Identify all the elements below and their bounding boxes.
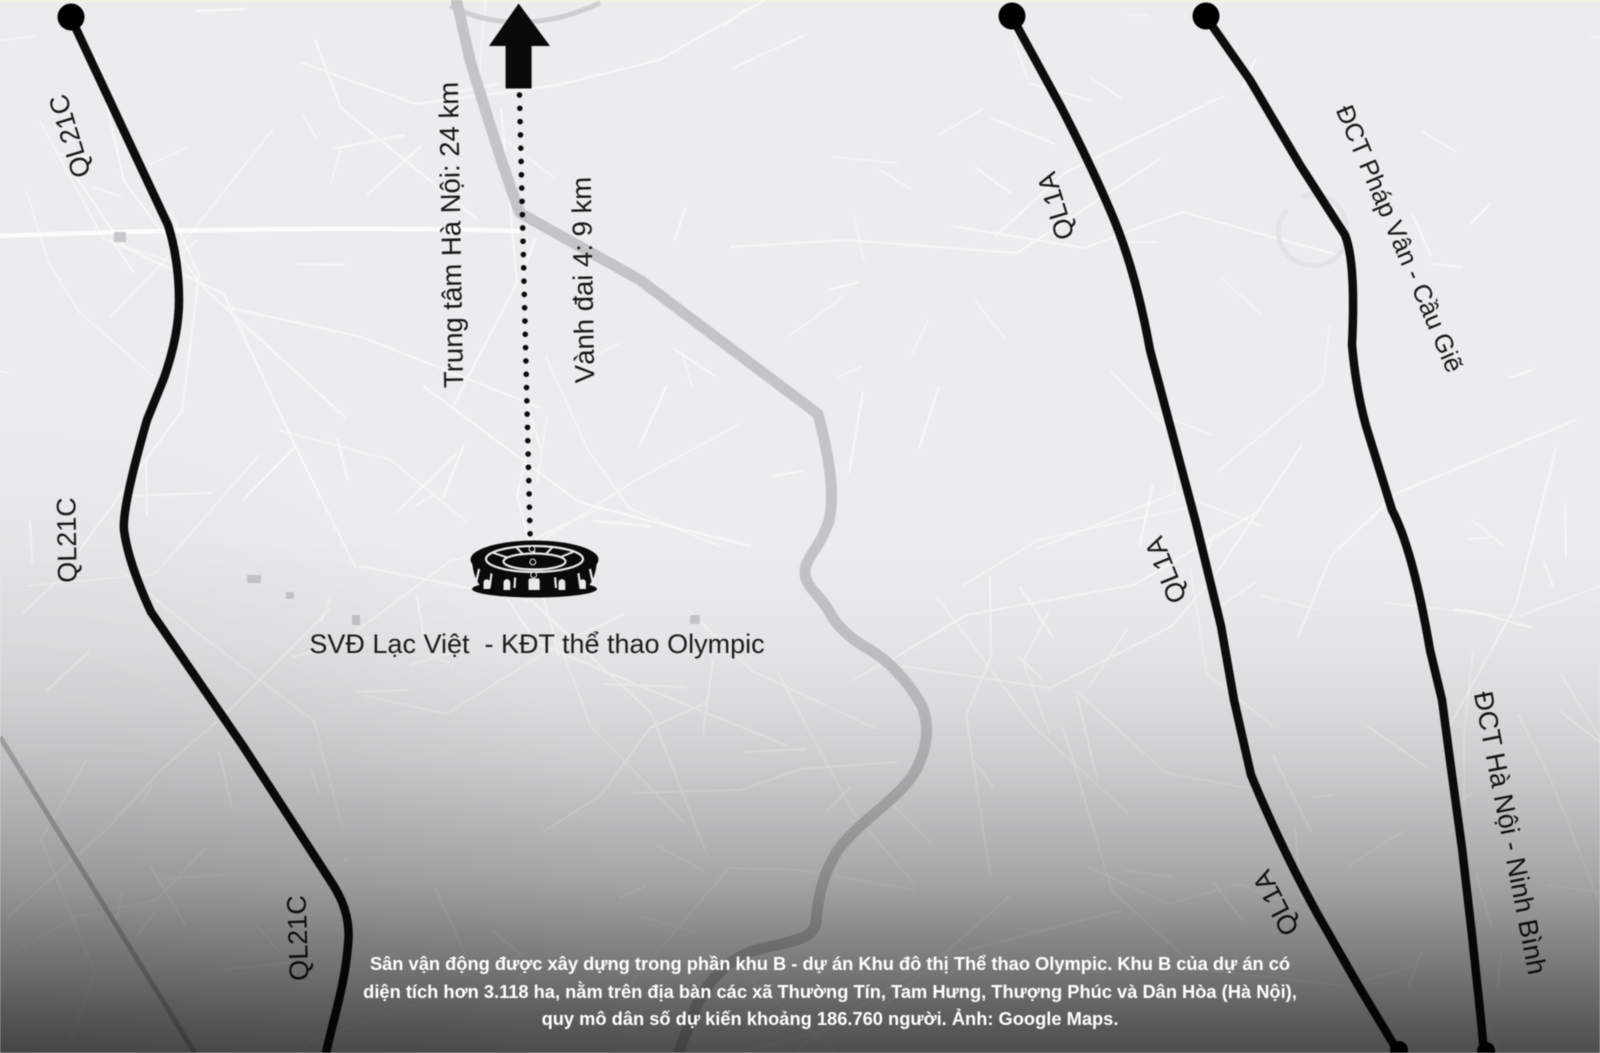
svg-text:Vành đai 4: 9 km: Vành đai 4: 9 km: [566, 177, 601, 384]
svg-text:diện tích hơn 3.118 ha, nằm tr: diện tích hơn 3.118 ha, nằm trên địa bàn…: [363, 981, 1297, 1002]
svg-text:Sân vận động được xây dựng tro: Sân vận động được xây dựng trong phần kh…: [370, 953, 1290, 974]
svg-text:Trung tâm Hà Nội: 24 km: Trung tâm Hà Nội: 24 km: [433, 82, 469, 389]
svg-text:quy mô dân số dự kiến khoảng 1: quy mô dân số dự kiến khoảng 186.760 ngư…: [542, 1008, 1119, 1029]
